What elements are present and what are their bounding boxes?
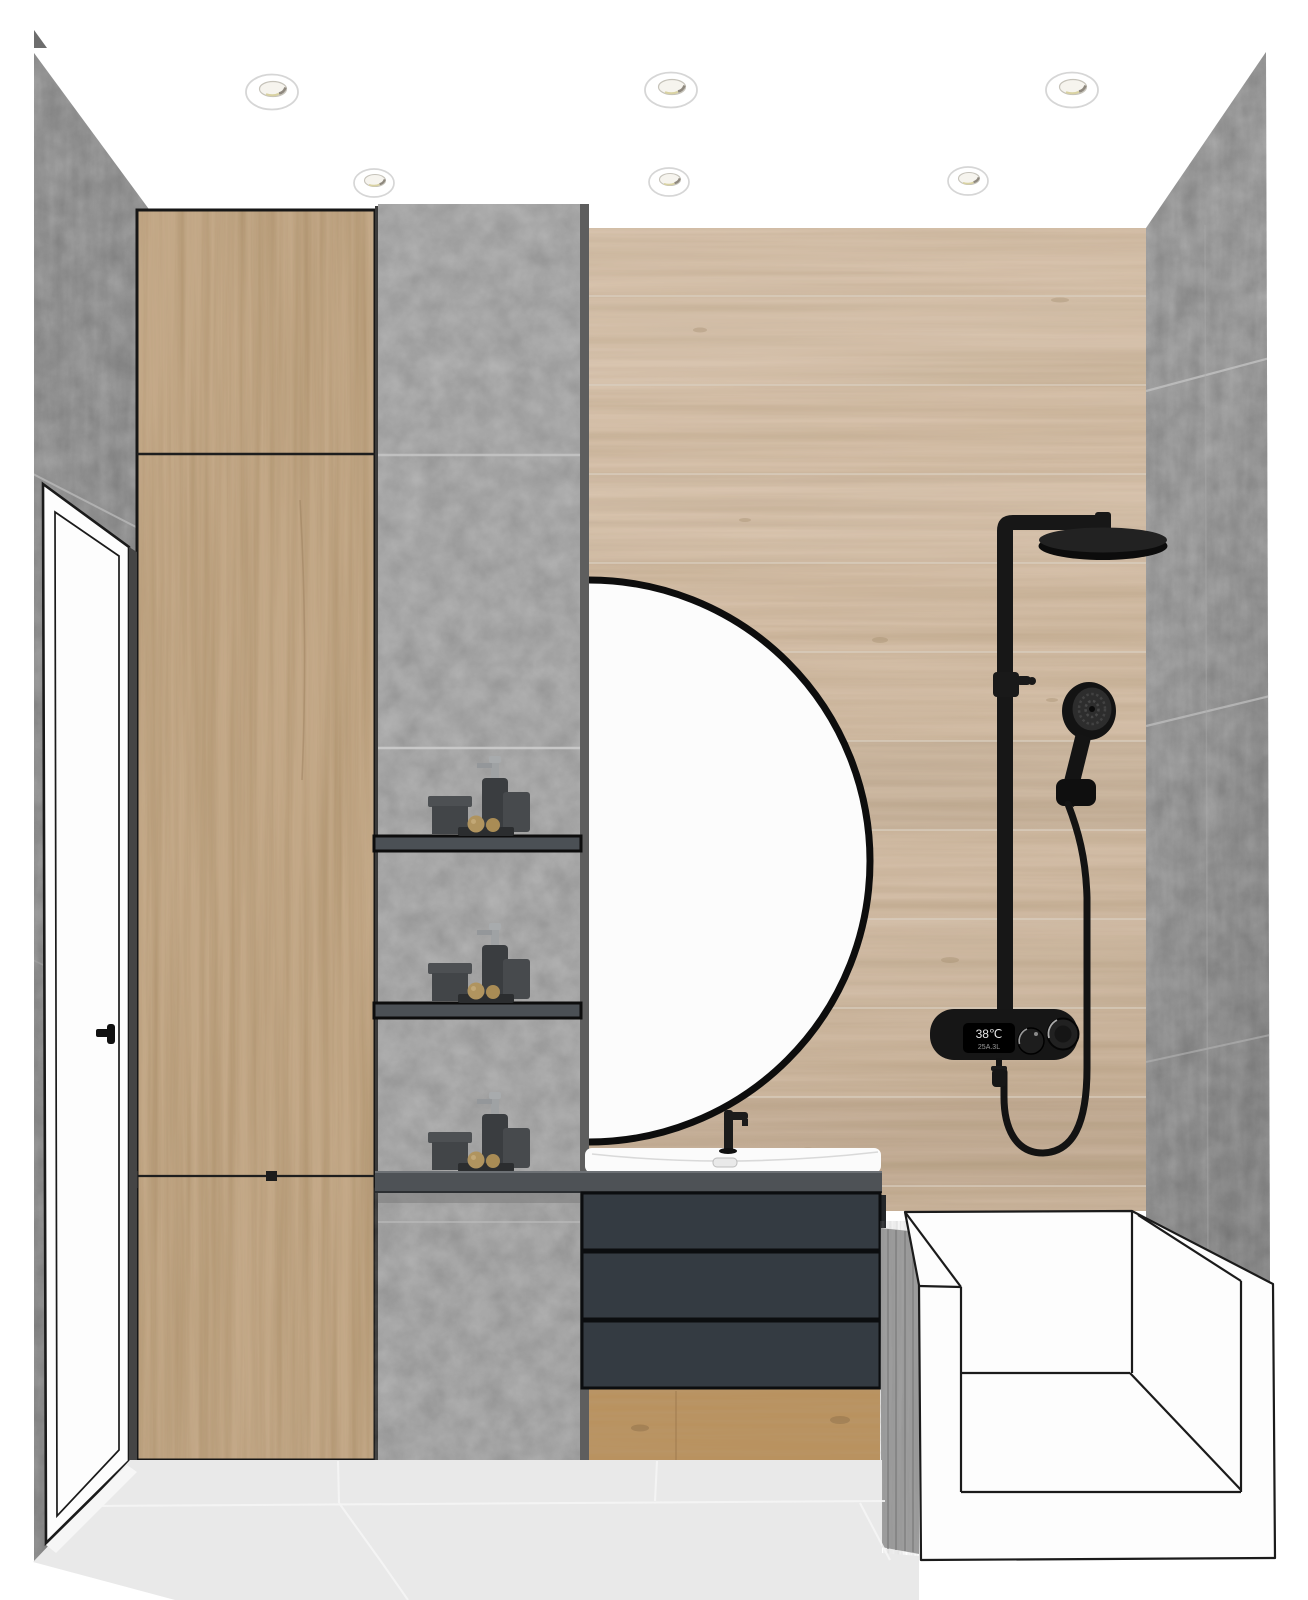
svg-text:25A.3L: 25A.3L xyxy=(978,1044,1000,1051)
svg-text:38℃: 38℃ xyxy=(976,1027,1003,1041)
